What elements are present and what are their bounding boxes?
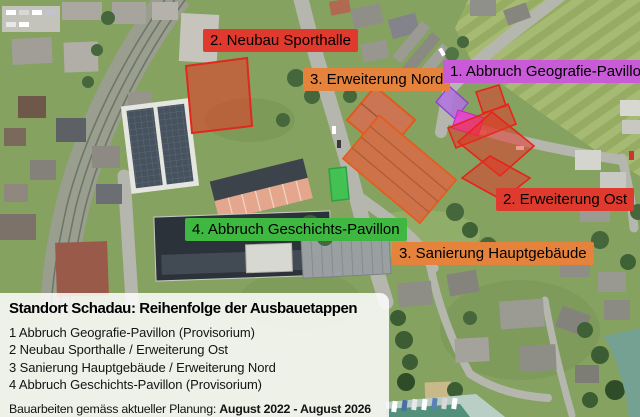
map-label-erweiterung-ost: 2. Erweiterung Ost [496, 188, 634, 211]
map-label-erweiterung-nord: 3. Erweiterung Nord [303, 68, 450, 91]
legend-footer-dates: August 2022 - August 2026 [219, 402, 371, 416]
legend-panel: Standort Schadau: Reihenfolge der Ausbau… [0, 293, 389, 417]
map-label-abbruch-geschichts-pavillon: 4. Abbruch Geschichts-Pavillon [185, 218, 407, 241]
legend-item-1: 1 Abbruch Geografie-Pavillon (Provisoriu… [9, 324, 379, 341]
map-label-neubau-sporthalle: 2. Neubau Sporthalle [203, 29, 358, 52]
map-label-sanierung-hauptgebaeude: 3. Sanierung Hauptgebäude [392, 242, 594, 265]
legend-footer-prefix: Bauarbeiten gemäss aktueller Planung: [9, 402, 219, 416]
legend-title: Standort Schadau: Reihenfolge der Ausbau… [9, 300, 379, 317]
gym-hall [301, 236, 391, 279]
map-label-abbruch-geografie-pavillon: 1. Abbruch Geografie-Pavillon [443, 60, 640, 83]
overlay-neubau-sporthalle-site [186, 58, 252, 133]
legend-item-3: 3 Sanierung Hauptgebäude / Erweiterung N… [9, 359, 379, 376]
legend-item-4: 4 Abbruch Geschichts-Pavillon (Provisori… [9, 376, 379, 393]
solar-building [121, 98, 199, 194]
overlay-geschichts-pavillon [329, 167, 349, 201]
parking-lot [2, 6, 60, 32]
brick-building [55, 241, 109, 297]
legend-item-2: 2 Neubau Sporthalle / Erweiterung Ost [9, 341, 379, 358]
aerial-map-screenshot: 2. Neubau Sporthalle 3. Erweiterung Nord… [0, 0, 640, 417]
legend-footer: Bauarbeiten gemäss aktueller Planung: Au… [9, 402, 379, 416]
white-flat-building [246, 243, 293, 273]
